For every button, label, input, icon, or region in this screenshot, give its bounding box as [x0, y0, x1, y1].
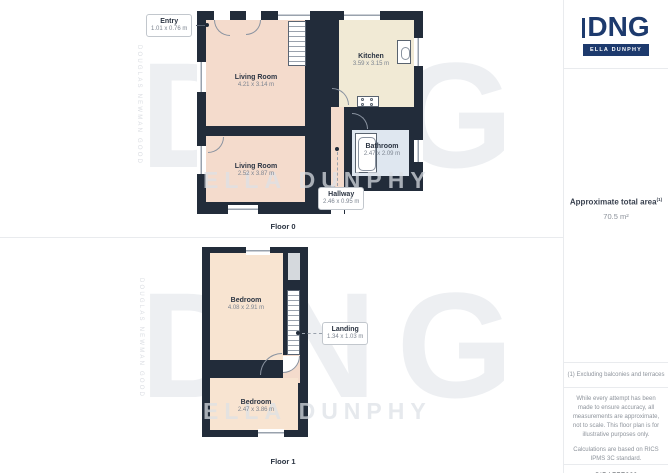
closet — [288, 253, 300, 280]
room-name: Hallway — [323, 190, 359, 199]
window — [414, 38, 423, 66]
total-area-value: 70.5 m² — [564, 212, 668, 221]
stairs-icon — [287, 290, 300, 355]
room-dims: 2.52 x 3.87 m — [235, 171, 277, 179]
room-dims: 3.59 x 3.15 m — [353, 61, 389, 69]
window — [344, 11, 380, 20]
label-dot — [205, 23, 209, 27]
room-name: Bedroom — [228, 296, 264, 305]
panel-floor1: DNG DOUGLAS NEWMAN GOOD ELLA DUNPHY Bedr… — [0, 238, 563, 473]
room-label-living-room-top: Living Room 4.21 x 3.14 m — [235, 73, 277, 90]
total-area-superscript: (1) — [657, 197, 663, 202]
window — [258, 429, 284, 437]
room-label-bedroom-top: Bedroom 4.08 x 2.91 m — [228, 296, 264, 313]
logo-bar-icon — [582, 18, 585, 38]
total-area-title: Approximate total area(1) — [564, 197, 668, 207]
floor-caption: Floor 1 — [270, 457, 295, 466]
room-label-bedroom-bottom: Bedroom 2.47 x 3.86 m — [238, 398, 274, 415]
room-name: Living Room — [235, 73, 277, 82]
room-name: Bedroom — [238, 398, 274, 407]
info-sidebar: DNG ELLA DUNPHY Approximate total area(1… — [563, 0, 668, 473]
room-label-hallway: Hallway 2.46 x 0.95 m — [318, 187, 364, 210]
floorplan-sheet: DNG DOUGLAS NEWMAN GOOD — [0, 0, 668, 473]
room-label-landing: Landing 1.34 x 1.03 m — [322, 322, 368, 345]
label-connector — [337, 152, 338, 186]
window — [414, 140, 423, 162]
label-connector — [196, 25, 205, 26]
total-area-title-text: Approximate total area — [570, 198, 657, 207]
room-dims: 1.01 x 0.76 m — [151, 26, 187, 34]
window — [228, 205, 258, 214]
window — [246, 247, 270, 255]
room-name: Kitchen — [353, 52, 389, 61]
room-label-entry: Entry 1.01 x 0.76 m — [146, 14, 192, 37]
watermark-vertical-text: DOUGLAS NEWMAN GOOD — [136, 45, 142, 165]
dng-logo: DNG — [582, 13, 649, 41]
area-footnote: (1) Excluding balconies and terraces — [564, 362, 668, 388]
label-connector — [302, 333, 322, 334]
window — [197, 62, 206, 92]
room-dims: 4.08 x 2.91 m — [228, 305, 264, 313]
label-dot — [296, 331, 300, 335]
watermark-vertical-text: DOUGLAS NEWMAN GOOD — [138, 278, 144, 398]
room-name: Bathroom — [364, 142, 400, 151]
agency-logo: DNG ELLA DUNPHY — [564, 0, 668, 69]
disclaimer-text-1: While every attempt has been made to ens… — [571, 395, 661, 440]
label-dot — [335, 147, 339, 151]
total-area-block: Approximate total area(1) 70.5 m² — [564, 197, 668, 221]
panel-floor0: DNG DOUGLAS NEWMAN GOOD — [0, 0, 563, 238]
logo-agency-band: ELLA DUNPHY — [583, 44, 649, 56]
room-name: Living Room — [235, 162, 277, 171]
room-dims: 1.34 x 1.03 m — [327, 334, 363, 342]
room-dims: 4.21 x 3.14 m — [235, 82, 277, 90]
disclaimer-text-2: Calculations are based on RICS IPMS 3C s… — [571, 446, 661, 464]
stove-icon — [357, 96, 379, 107]
room-dims: 2.46 x 0.95 m — [323, 199, 359, 207]
door-opening — [214, 11, 230, 20]
room-dims: 2.47 x 2.09 m — [364, 151, 400, 159]
window — [278, 11, 310, 20]
logo-text: DNG — [587, 13, 649, 41]
room-dims: 2.47 x 3.86 m — [238, 407, 274, 415]
room-name: Landing — [327, 325, 363, 334]
room-name: Entry — [151, 17, 187, 26]
floor-caption: Floor 0 — [270, 222, 295, 231]
door-opening — [246, 11, 261, 20]
stairs-icon — [288, 21, 306, 66]
room-label-living-room-bottom: Living Room 2.52 x 3.87 m — [235, 162, 277, 179]
kitchen-sink-icon — [397, 40, 411, 64]
room-label-bathroom: Bathroom 2.47 x 2.09 m — [364, 142, 400, 159]
disclaimer-block: While every attempt has been made to ens… — [564, 387, 668, 465]
room-label-kitchen: Kitchen 3.59 x 3.15 m — [353, 52, 389, 69]
